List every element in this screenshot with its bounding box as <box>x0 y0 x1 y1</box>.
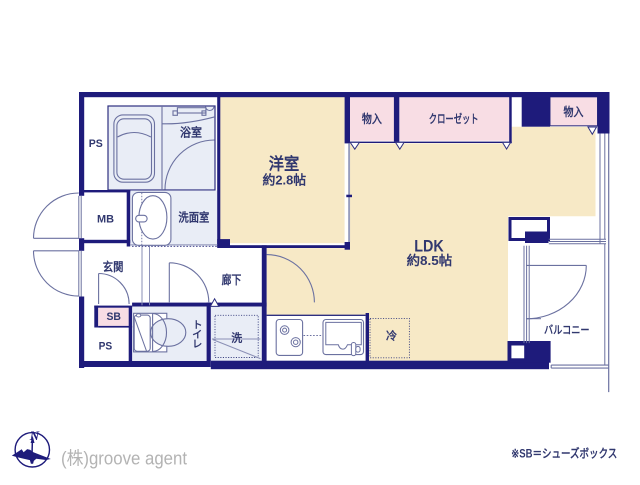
svg-text:トイレ: トイレ <box>192 320 202 351</box>
svg-text:N: N <box>29 428 40 443</box>
svg-text:冷: 冷 <box>386 328 397 342</box>
svg-text:物入: 物入 <box>362 111 382 126</box>
svg-text:約8.5帖: 約8.5帖 <box>407 253 453 268</box>
svg-text:クローゼット: クローゼット <box>429 111 479 126</box>
svg-text:MB: MB <box>97 213 114 225</box>
svg-text:バルコニー: バルコニー <box>544 324 590 337</box>
svg-text:SB: SB <box>106 311 121 323</box>
svg-text:浴室: 浴室 <box>180 124 202 139</box>
svg-text:洋室: 洋室 <box>269 154 300 174</box>
svg-text:※SB＝シューズボックス: ※SB＝シューズボックス <box>511 445 617 460</box>
svg-text:PS: PS <box>89 138 103 150</box>
svg-text:PS: PS <box>99 340 113 352</box>
svg-text:廊下: 廊下 <box>222 272 242 287</box>
svg-text:洗面室: 洗面室 <box>178 210 209 225</box>
svg-text:(株)groove agent: (株)groove agent <box>61 448 187 468</box>
svg-text:玄関: 玄関 <box>103 259 124 274</box>
svg-text:物入: 物入 <box>564 104 584 119</box>
svg-text:洗: 洗 <box>231 331 242 345</box>
svg-text:約2.8帖: 約2.8帖 <box>263 173 307 188</box>
